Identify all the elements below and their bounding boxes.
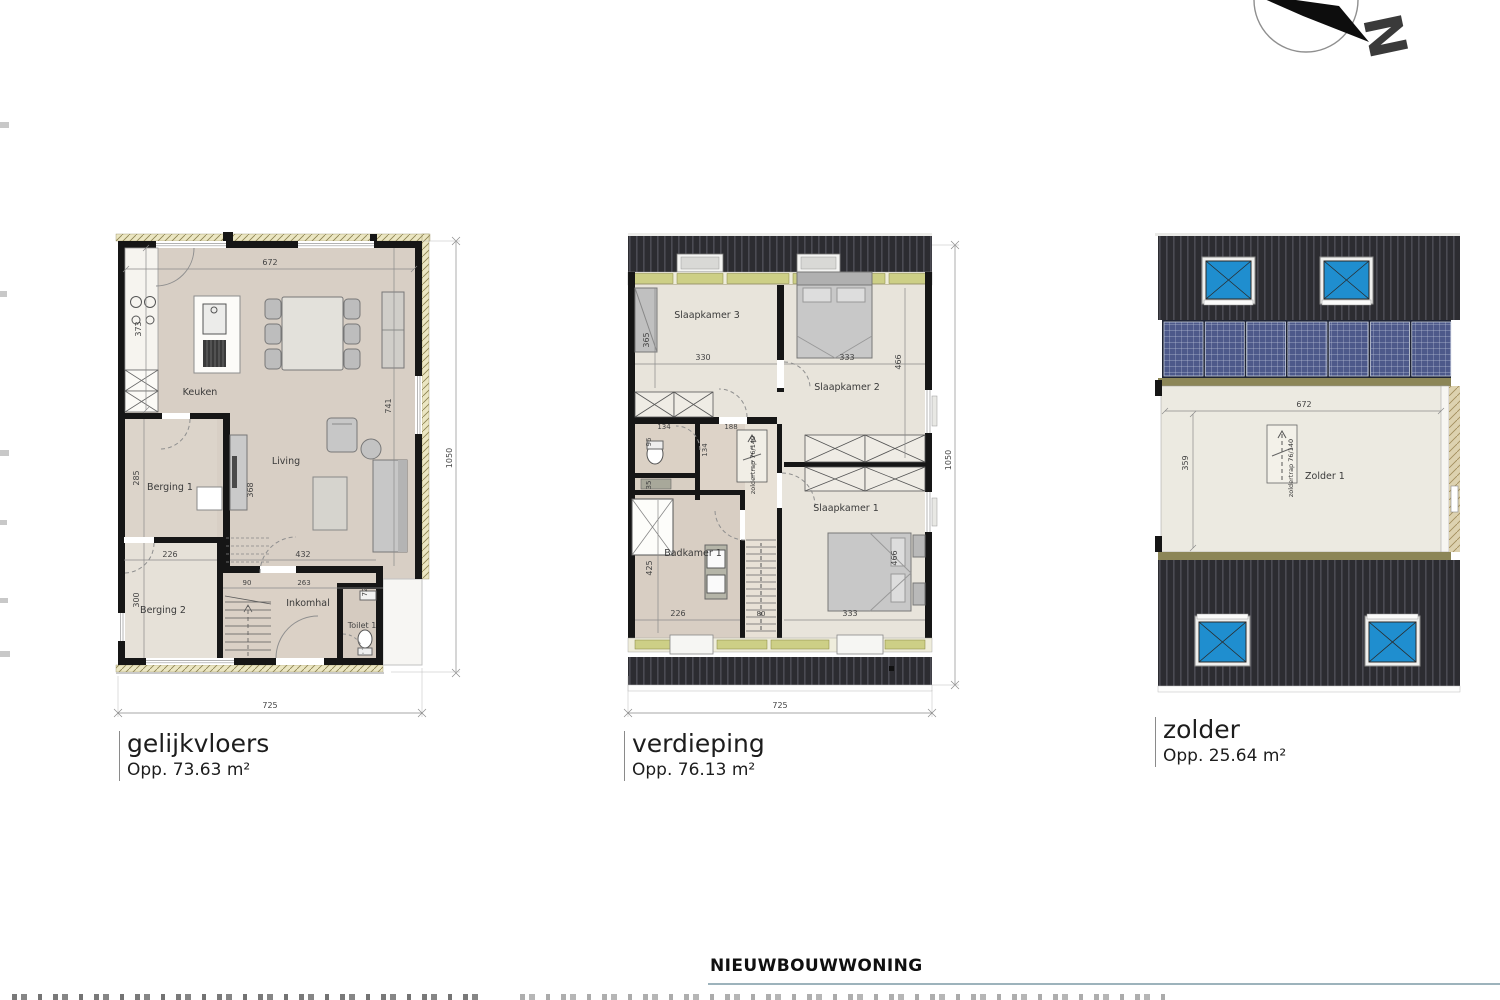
label-living: Living (272, 456, 300, 467)
dim-725: 725 (772, 701, 787, 710)
stair-label: zoldertrap 76/140 (749, 436, 757, 494)
dim-359: 359 (1181, 455, 1190, 470)
roof-edge-bottom (1158, 686, 1460, 692)
dim-72: 72 (361, 588, 369, 597)
solar-panels (1162, 320, 1451, 378)
dim-333b: 333 (842, 609, 857, 618)
label-badkamer1: Badkamer 1 (664, 548, 722, 559)
drawing-sheet: N (0, 0, 1500, 1000)
gable-inner (1441, 386, 1449, 552)
dim-725: 725 (262, 701, 277, 710)
edge-artifact (0, 651, 10, 657)
sill-band-bottom (628, 635, 932, 654)
clipped-text-artifact (12, 994, 482, 1000)
roof-band-bottom (628, 657, 932, 685)
gable-window (1451, 486, 1458, 512)
sill-band-top (1158, 378, 1451, 386)
dim-134: 134 (657, 423, 671, 431)
gable-wall (1449, 386, 1460, 552)
dim-80: 80 (757, 610, 766, 618)
dining-set (265, 297, 360, 370)
label-keuken: Keuken (183, 387, 218, 398)
label-slaapkamer3: Slaapkamer 3 (674, 310, 740, 321)
clipped-text-artifact (520, 994, 1170, 1000)
roof-edge-bottom (628, 685, 932, 691)
caption-zolder: zolder Opp. 25.64 m² (1163, 717, 1286, 766)
plan-title: zolder (1163, 717, 1286, 743)
edge-artifact (0, 122, 9, 128)
sink-icon (203, 304, 226, 334)
plan-area: Opp. 73.63 m² (127, 760, 269, 780)
edge-artifact (0, 520, 7, 525)
dim-466b: 466 (890, 550, 899, 565)
label-toilet1: Toilet 1 (347, 621, 377, 630)
label-slaapkamer1: Slaapkamer 1 (813, 503, 879, 514)
label-slaapkamer2: Slaapkamer 2 (814, 382, 880, 393)
north-compass: N (1247, 0, 1422, 90)
edge-artifact (0, 291, 7, 297)
label-zolder1: Zolder 1 (1305, 471, 1345, 482)
roof-edge (1155, 233, 1460, 236)
plan-area: Opp. 25.64 m² (1163, 746, 1286, 766)
project-title: NIEUWBOUWWONING (710, 956, 923, 976)
caption-verdieping: verdieping Opp. 76.13 m² (632, 731, 765, 780)
wall-stub (1155, 536, 1162, 552)
label-berging2: Berging 2 (140, 605, 186, 616)
plan-title: gelijkvloers (127, 731, 269, 757)
pantry-cabinets (125, 370, 158, 412)
dim-1050: 1050 (944, 450, 953, 470)
dim-373: 373 (134, 321, 143, 336)
compass-north-label: N (1350, 9, 1418, 64)
dim-188: 188 (724, 423, 737, 431)
dim-263: 263 (297, 579, 310, 587)
plan-area: Opp. 76.13 m² (632, 760, 765, 780)
dim-672: 672 (1296, 400, 1311, 409)
edge-artifact (0, 598, 8, 603)
floorplan-zolder: zoldertrap 76/140 Zolder 1 672 359 (1145, 228, 1485, 708)
roof-band-top (628, 236, 932, 272)
dim-226: 226 (670, 609, 685, 618)
dim-285: 285 (132, 470, 141, 485)
wall-stub (1155, 380, 1162, 396)
floorplan-gelijkvloers: 672 373 285 226 300 368 741 432 90 263 7… (108, 228, 468, 728)
caption-tick (624, 731, 625, 781)
dim-333: 333 (839, 353, 854, 362)
dim-425: 425 (645, 560, 654, 575)
floorplan-verdieping: zoldertrap 76/140 (615, 228, 975, 728)
dim-226: 226 (162, 550, 177, 559)
sill-band-bottom (1158, 552, 1451, 560)
label-inkomhal: Inkomhal (286, 598, 330, 609)
dim-35: 35 (645, 481, 653, 490)
caption-tick (119, 731, 120, 781)
dim-90: 90 (243, 579, 252, 587)
dim-741: 741 (384, 398, 393, 413)
roof-marker (889, 666, 894, 671)
roof-edge (628, 233, 932, 236)
dim-672: 672 (262, 258, 277, 267)
caption-tick (1155, 717, 1156, 767)
footer-rule (708, 983, 1500, 985)
dim-368: 368 (246, 482, 255, 497)
edge-artifact (0, 450, 9, 456)
dim-1050: 1050 (445, 448, 454, 468)
dim-466: 466 (894, 354, 903, 369)
dim-134b: 134 (701, 443, 709, 457)
sill-band-top (628, 272, 932, 285)
plan-title: verdieping (632, 731, 765, 757)
label-berging1: Berging 1 (147, 482, 193, 493)
dim-432: 432 (295, 550, 310, 559)
dim-330: 330 (695, 353, 710, 362)
caption-gelijkvloers: gelijkvloers Opp. 73.63 m² (127, 731, 269, 780)
stair-label: zoldertrap 76/140 (1287, 439, 1295, 497)
dim-365: 365 (642, 332, 651, 347)
dim-96: 96 (645, 437, 653, 446)
